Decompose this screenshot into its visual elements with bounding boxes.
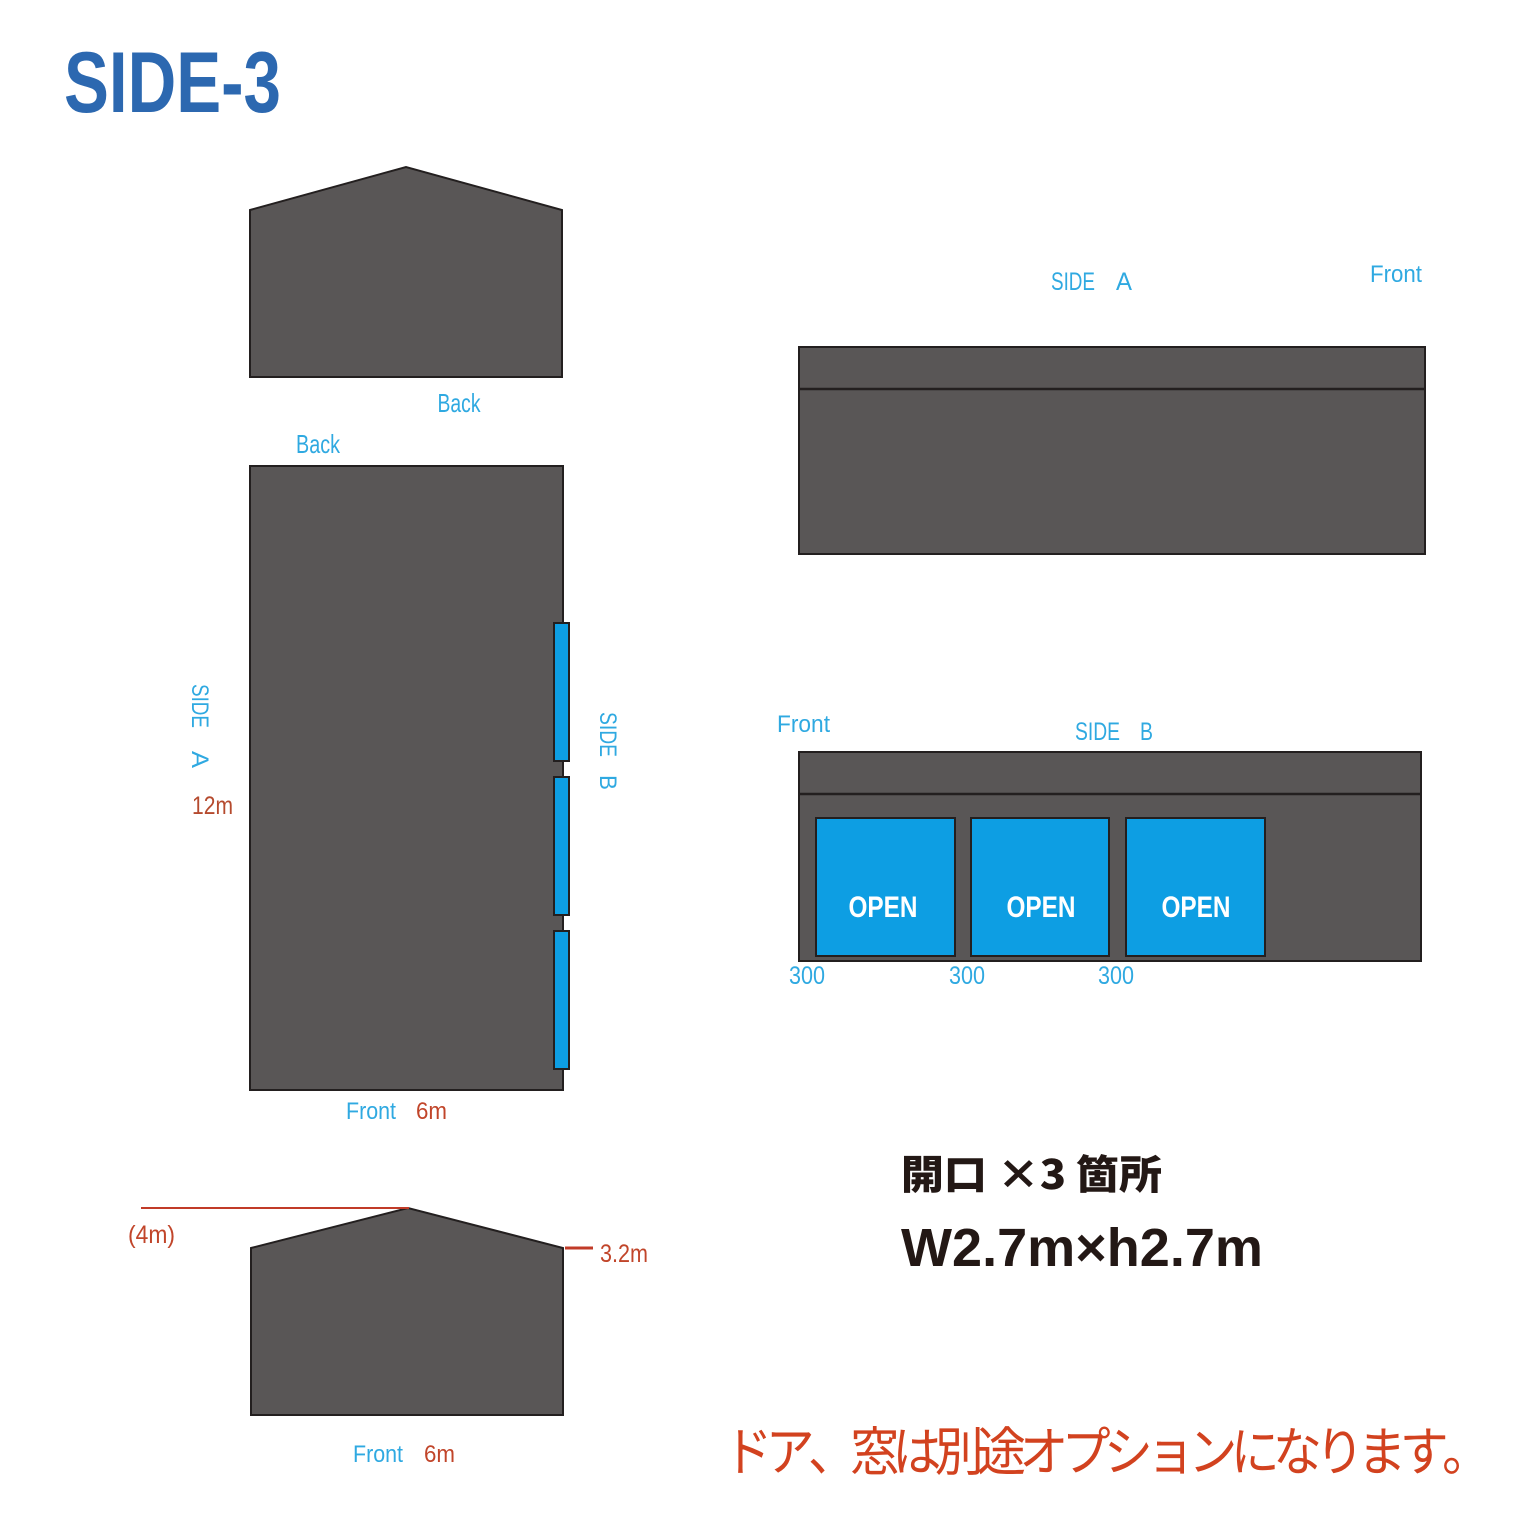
svg-text:SIDE: SIDE: [186, 684, 213, 728]
svg-text:300: 300: [789, 962, 825, 990]
svg-text:OPEN: OPEN: [1007, 891, 1076, 924]
svg-text:Front: Front: [353, 1441, 403, 1468]
svg-text:300: 300: [949, 962, 985, 990]
svg-text:Back: Back: [296, 429, 341, 459]
svg-text:Front: Front: [777, 711, 830, 738]
svg-text:A: A: [1116, 268, 1132, 296]
svg-text:W2.7m×h2.7m: W2.7m×h2.7m: [901, 1218, 1263, 1278]
svg-text:300: 300: [1098, 962, 1134, 990]
svg-text:OPEN: OPEN: [849, 891, 918, 924]
svg-text:B: B: [1140, 718, 1153, 746]
svg-text:Back: Back: [438, 388, 482, 418]
svg-text:Front: Front: [1370, 261, 1422, 288]
svg-text:B: B: [594, 775, 621, 790]
svg-text:6m: 6m: [416, 1098, 447, 1125]
svg-text:SIDE: SIDE: [1051, 268, 1095, 296]
svg-text:12m: 12m: [192, 792, 233, 820]
svg-text:6m: 6m: [424, 1441, 455, 1468]
svg-text:SIDE: SIDE: [1075, 718, 1120, 746]
svg-text:Front: Front: [346, 1098, 396, 1125]
svg-text:3.2m: 3.2m: [600, 1240, 648, 1268]
svg-text:SIDE-3: SIDE-3: [64, 35, 281, 131]
svg-text:OPEN: OPEN: [1162, 891, 1231, 924]
svg-text:(4m): (4m): [128, 1221, 175, 1249]
svg-text:A: A: [186, 751, 213, 768]
svg-text:SIDE: SIDE: [594, 712, 621, 757]
